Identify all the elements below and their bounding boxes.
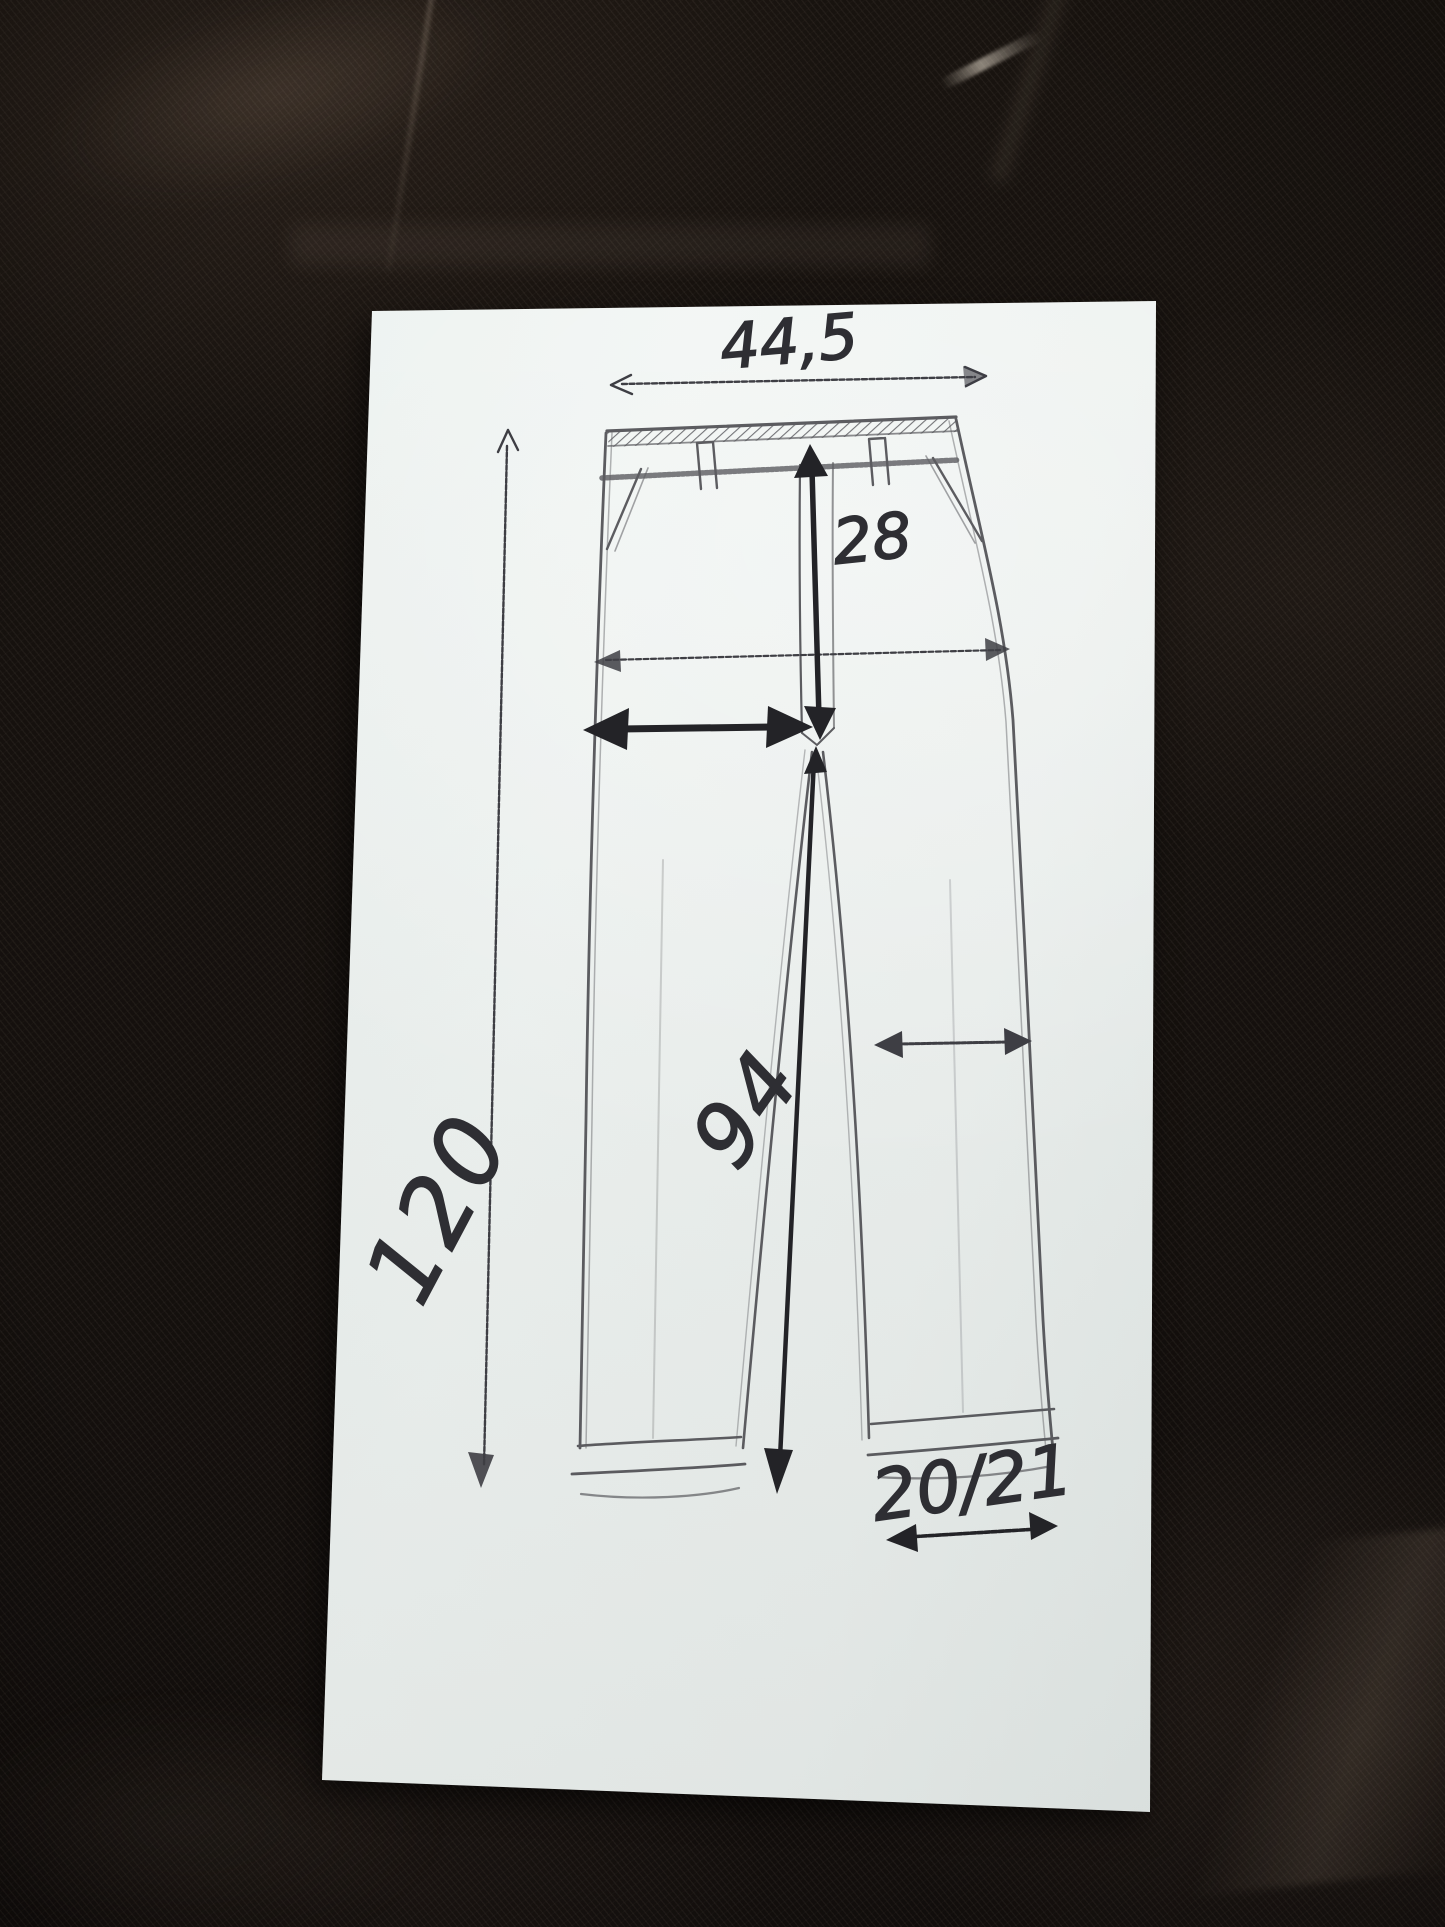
arrowhead-left-icon <box>874 1031 903 1058</box>
hip-width-arrow <box>594 638 1010 672</box>
arrowhead-down-icon <box>804 706 836 740</box>
pocket-left <box>607 469 641 549</box>
cuff-left-curl <box>581 1488 739 1498</box>
fly-line-left <box>800 465 802 733</box>
outer-seam-right <box>956 419 1053 1450</box>
waistband-hatching <box>607 417 958 447</box>
fly-line-right <box>833 463 834 728</box>
arrowhead-down-icon <box>764 1448 793 1494</box>
outer-length-arrow <box>468 430 518 1488</box>
arrowhead-right-icon <box>766 706 813 748</box>
label-outer-length: 120 <box>344 1095 533 1320</box>
waistband-seam <box>602 460 958 478</box>
outer-seam-left <box>580 433 606 1448</box>
label-rise: 28 <box>829 498 915 579</box>
arrowhead-up-icon <box>794 444 828 478</box>
arrowhead-left-icon <box>583 708 629 750</box>
belt-loop-left <box>697 442 717 489</box>
leg-crease-left <box>653 860 663 1438</box>
arrowhead-down-icon <box>468 1452 494 1488</box>
thigh-width-arrow <box>583 706 813 750</box>
photo-canvas: 44,5 28 120 94 20/21 <box>0 0 1445 1927</box>
inner-seam-right-echo <box>816 754 862 1440</box>
measurement-labels: 44,5 28 120 94 20/21 <box>344 299 1078 1538</box>
pocket-left-echo <box>615 468 648 551</box>
arrowhead-right-icon <box>1029 1512 1058 1540</box>
outer-seam-right-echo <box>949 421 1046 1450</box>
leg-crease-right <box>950 880 963 1412</box>
label-waist-width: 44,5 <box>717 299 861 384</box>
cuff-left-top <box>578 1437 741 1446</box>
pencil-arrows <box>468 366 1032 1488</box>
trouser-measurement-sketch: 44,5 28 120 94 20/21 <box>0 0 1445 1927</box>
cuff-left-bottom <box>572 1464 745 1474</box>
